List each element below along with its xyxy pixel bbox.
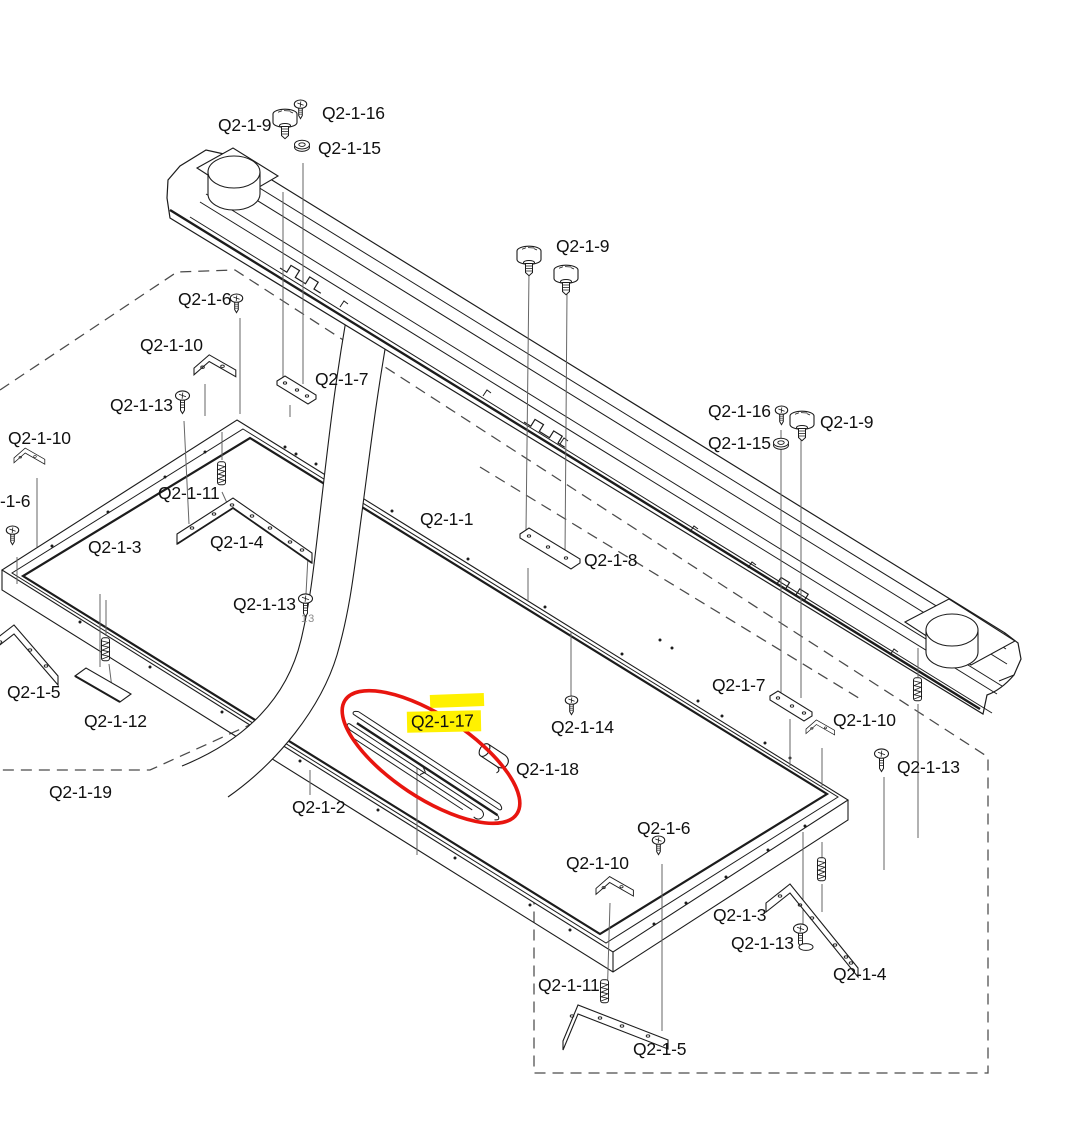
threaded-stud-icon — [218, 462, 226, 485]
angle-plate-q2-1-4-right — [766, 884, 858, 977]
threaded-stud-icon — [601, 980, 609, 1003]
corner-bracket-icon — [194, 355, 236, 377]
screw-icon — [775, 406, 787, 425]
threaded-stud-icon — [818, 858, 826, 881]
corner-bracket-icon — [14, 448, 45, 464]
diagram-page: Q2-1-9Q2-1-16Q2-1-15Q2-1-6Q2-1-10Q2-1-13… — [0, 0, 1085, 1125]
washer-icon — [295, 140, 310, 151]
cap-screw-icon — [790, 411, 814, 441]
screw-icon — [230, 294, 242, 313]
plate-q2-1-7-right — [770, 691, 812, 721]
angle-plate-q2-1-5-bottom — [563, 1005, 668, 1050]
flat-screw-icon — [875, 749, 889, 772]
cap-screw-icon — [273, 109, 297, 139]
plate-q2-1-12 — [75, 668, 131, 702]
flat-screw-icon — [176, 391, 190, 414]
threaded-stud-icon — [102, 638, 110, 661]
highlight-marker — [430, 693, 484, 708]
flat-screw-icon — [794, 924, 808, 947]
cap-screw-icon — [554, 265, 578, 295]
plate-q2-1-8 — [520, 528, 580, 569]
corner-bracket-icon — [806, 720, 835, 735]
washer-icon — [774, 438, 789, 449]
exploded-diagram-canvas — [0, 0, 1085, 1125]
washer-icon — [799, 944, 813, 951]
cap-screw-icon — [517, 246, 541, 276]
angle-plate-q2-1-5-left — [0, 625, 58, 685]
screw-icon — [6, 526, 18, 545]
threaded-stud-icon — [914, 678, 922, 701]
plate-q2-1-7-left — [277, 376, 316, 404]
